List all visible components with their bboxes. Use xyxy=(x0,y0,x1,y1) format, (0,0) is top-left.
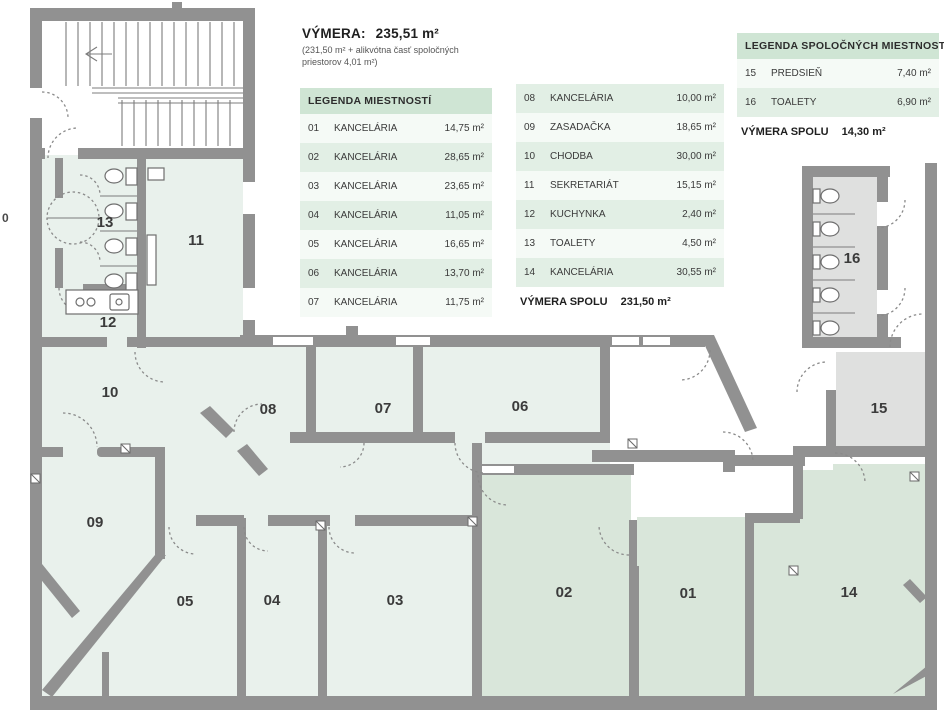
room-area: 2,40 m² xyxy=(682,209,716,220)
common-total-label: VÝMERA SPOLU xyxy=(741,126,829,138)
toilet-icon xyxy=(105,239,123,253)
toilet-icon xyxy=(821,321,839,335)
room-area: 15,15 m² xyxy=(677,180,716,191)
legend-row: 15PREDSIEŇ7,40 m² xyxy=(737,59,939,88)
room-label-06: 06 xyxy=(512,398,529,415)
room-label-04: 04 xyxy=(264,592,281,609)
legend-row: 01KANCELÁRIA14,75 m² xyxy=(300,114,492,143)
toilet-icon xyxy=(821,288,839,302)
room-number: 06 xyxy=(308,268,334,279)
room-area: 18,65 m² xyxy=(677,122,716,133)
room-name: ZASADAČKA xyxy=(550,122,677,133)
room-area: 6,90 m² xyxy=(897,97,931,108)
legend-row: 08KANCELÁRIA10,00 m² xyxy=(516,84,724,113)
room-name: KANCELÁRIA xyxy=(334,297,445,308)
room-area: 14,75 m² xyxy=(445,123,484,134)
room-label-09: 09 xyxy=(87,514,104,531)
legend-row: 12KUCHYNKA2,40 m² xyxy=(516,200,724,229)
common-total-line: VÝMERA SPOLU14,30 m² xyxy=(737,126,939,138)
room-number: 13 xyxy=(524,238,550,249)
room-area: 4,50 m² xyxy=(682,238,716,249)
room-name: KANCELÁRIA xyxy=(334,268,445,279)
stove-burner-icon xyxy=(116,299,122,305)
legend-row: 09ZASADAČKA18,65 m² xyxy=(516,113,724,142)
window xyxy=(396,337,430,345)
total-area-label: VÝMERA: xyxy=(302,26,366,41)
room-area-14 xyxy=(754,464,925,696)
legend-row: 04KANCELÁRIA11,05 m² xyxy=(300,201,492,230)
room-area-02 xyxy=(482,470,631,696)
sink-icon xyxy=(148,168,164,180)
window xyxy=(30,88,42,118)
toilet-icon xyxy=(821,255,839,269)
room-area: 11,75 m² xyxy=(445,297,484,308)
room-name: KANCELÁRIA xyxy=(334,239,445,250)
rooms-total-value: 231,50 m² xyxy=(621,296,671,308)
room-number: 15 xyxy=(745,68,771,79)
window xyxy=(273,337,313,345)
room-name: CHODBA xyxy=(550,151,677,162)
room-number: 02 xyxy=(308,152,334,163)
edge-label: 0 xyxy=(2,211,9,225)
legend-row: 11SEKRETARIÁT15,15 m² xyxy=(516,171,724,200)
toilet-icon xyxy=(821,189,839,203)
total-area-title: VÝMERA:235,51 m² xyxy=(302,26,532,41)
room-label-14: 14 xyxy=(841,584,858,601)
room-area: 28,65 m² xyxy=(445,152,484,163)
room-name: KUCHYNKA xyxy=(550,209,682,220)
room-number: 16 xyxy=(745,97,771,108)
total-area-value: 235,51 m² xyxy=(376,26,439,41)
room-label-10: 10 xyxy=(102,384,119,401)
radiator-icon xyxy=(147,235,156,285)
sink-bowl-icon xyxy=(87,298,95,306)
rooms-total-label: VÝMERA SPOLU xyxy=(520,296,608,308)
room-number: 03 xyxy=(308,181,334,192)
rooms-total-line: VÝMERA SPOLU231,50 m² xyxy=(516,296,724,308)
legend-common-title: LEGENDA SPOLOČNÝCH MIESTNOSTÍ xyxy=(737,33,939,59)
room-label-12: 12 xyxy=(100,314,117,331)
room-number: 04 xyxy=(308,210,334,221)
room-name: PREDSIEŇ xyxy=(771,68,897,79)
window xyxy=(243,182,255,214)
room-label-07: 07 xyxy=(375,400,392,417)
toilet-icon xyxy=(105,274,123,288)
room-label-01: 01 xyxy=(680,585,697,602)
title-note-line2: priestorov 4,01 m²) xyxy=(302,56,532,68)
room-name: KANCELÁRIA xyxy=(334,181,445,192)
room-label-02: 02 xyxy=(556,584,573,601)
room-name: KANCELÁRIA xyxy=(334,152,445,163)
room-name: KANCELÁRIA xyxy=(334,210,445,221)
room-number: 14 xyxy=(524,267,550,278)
sink-bowl-icon xyxy=(76,298,84,306)
room-area-15 xyxy=(836,352,925,446)
title-note-line1: (231,50 m² + alikvótna časť spoločných xyxy=(302,44,532,56)
legend-row: 05KANCELÁRIA16,65 m² xyxy=(300,230,492,259)
legend-row: 07KANCELÁRIA11,75 m² xyxy=(300,288,492,317)
room-number: 09 xyxy=(524,122,550,133)
room-number: 07 xyxy=(308,297,334,308)
room-number: 01 xyxy=(308,123,334,134)
toilet-icon xyxy=(105,169,123,183)
room-label-16: 16 xyxy=(844,250,861,267)
legend-rooms-col1: LEGENDA MIESTNOSTÍ 01KANCELÁRIA14,75 m² … xyxy=(300,88,492,317)
toilet-icon xyxy=(821,222,839,236)
room-label-13: 13 xyxy=(97,214,114,231)
room-label-11: 11 xyxy=(188,232,204,249)
room-label-08: 08 xyxy=(260,401,277,418)
room-label-05: 05 xyxy=(177,593,194,610)
room-number: 12 xyxy=(524,209,550,220)
room-number: 11 xyxy=(524,180,550,191)
title-block: VÝMERA:235,51 m² (231,50 m² + alikvótna … xyxy=(302,26,532,68)
legend-row: 13TOALETY4,50 m² xyxy=(516,229,724,258)
room-area: 30,00 m² xyxy=(677,151,716,162)
room-number: 08 xyxy=(524,93,550,104)
window xyxy=(482,466,514,473)
legend-row: 14KANCELÁRIA30,55 m² xyxy=(516,258,724,287)
legend-row: 16TOALETY6,90 m² xyxy=(737,88,939,117)
legend-rooms-title: LEGENDA MIESTNOSTÍ xyxy=(300,88,492,114)
room-area: 16,65 m² xyxy=(445,239,484,250)
legend-rooms-col2: 08KANCELÁRIA10,00 m² 09ZASADAČKA18,65 m²… xyxy=(516,84,724,308)
room-area-01 xyxy=(637,517,745,696)
room-number: 10 xyxy=(524,151,550,162)
room-label-03: 03 xyxy=(387,592,404,609)
room-name: TOALETY xyxy=(771,97,897,108)
legend-row: 06KANCELÁRIA13,70 m² xyxy=(300,259,492,288)
legend-row: 02KANCELÁRIA28,65 m² xyxy=(300,143,492,172)
window xyxy=(612,337,639,345)
kitchen-fixtures-room12 xyxy=(66,290,138,314)
room-name: TOALETY xyxy=(550,238,682,249)
staircase xyxy=(66,22,243,146)
room-area: 7,40 m² xyxy=(897,68,931,79)
room-label-15: 15 xyxy=(871,400,888,417)
window xyxy=(243,288,255,320)
room-area: 30,55 m² xyxy=(677,267,716,278)
room-name: KANCELÁRIA xyxy=(550,267,677,278)
room-area: 11,05 m² xyxy=(445,210,484,221)
room-area: 10,00 m² xyxy=(677,93,716,104)
legend-row: 03KANCELÁRIA23,65 m² xyxy=(300,172,492,201)
legend-common: LEGENDA SPOLOČNÝCH MIESTNOSTÍ 15PREDSIEŇ… xyxy=(737,33,939,138)
room-name: SEKRETARIÁT xyxy=(550,180,677,191)
room-area: 13,70 m² xyxy=(445,268,484,279)
room-name: KANCELÁRIA xyxy=(334,123,445,134)
room-number: 05 xyxy=(308,239,334,250)
legend-row: 10CHODBA30,00 m² xyxy=(516,142,724,171)
room-name: KANCELÁRIA xyxy=(550,93,677,104)
room-area: 23,65 m² xyxy=(445,181,484,192)
common-total-value: 14,30 m² xyxy=(842,126,886,138)
window xyxy=(643,337,670,345)
